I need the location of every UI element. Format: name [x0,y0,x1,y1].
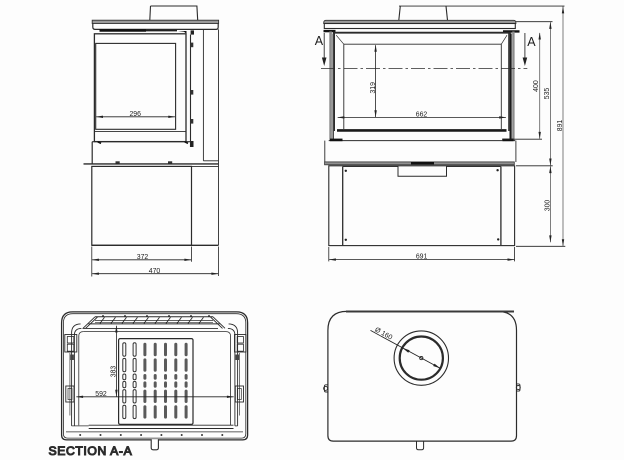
svg-text:A: A [315,34,324,48]
svg-text:SECTION A-A: SECTION A-A [49,444,133,458]
svg-text:Ø 160: Ø 160 [373,327,393,342]
svg-text:400: 400 [533,80,540,92]
svg-text:296: 296 [129,111,141,118]
svg-text:592: 592 [95,391,107,398]
svg-text:691: 691 [416,254,428,261]
svg-text:300: 300 [545,200,552,212]
svg-text:372: 372 [137,254,149,261]
svg-text:470: 470 [149,268,161,275]
svg-text:319: 319 [370,82,377,94]
svg-text:535: 535 [544,88,551,100]
svg-text:A: A [527,35,536,49]
svg-text:662: 662 [416,112,428,119]
svg-text:891: 891 [557,120,564,132]
svg-text:383: 383 [110,366,117,378]
